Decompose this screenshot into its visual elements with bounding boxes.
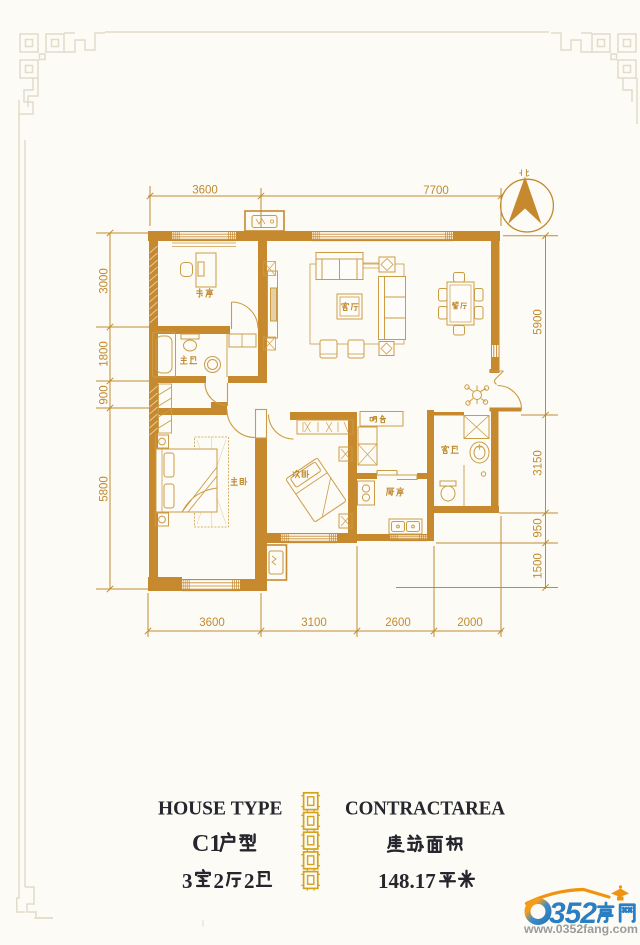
svg-text:CONTRACTAREA: CONTRACTAREA [345,799,505,820]
svg-text:5900: 5900 [533,309,545,335]
svg-text:1800: 1800 [99,341,111,367]
svg-text:3000: 3000 [99,268,111,294]
svg-text:2600: 2600 [385,617,411,629]
svg-text:2: 2 [214,869,225,893]
svg-text:900: 900 [99,385,111,404]
svg-text:3100: 3100 [301,617,327,629]
svg-text:www.0352fang.com: www.0352fang.com [523,924,638,936]
svg-text:C1: C1 [192,831,221,857]
svg-text:3600: 3600 [199,617,225,629]
svg-text:7700: 7700 [423,185,449,197]
svg-text:3600: 3600 [192,185,218,197]
svg-text:950: 950 [533,518,545,537]
svg-text:2000: 2000 [457,617,483,629]
svg-text:1500: 1500 [533,553,545,579]
svg-text:HOUSE TYPE: HOUSE TYPE [158,799,283,820]
svg-text:5800: 5800 [99,476,111,502]
svg-text:148.17: 148.17 [378,869,436,893]
svg-text:3150: 3150 [533,450,545,476]
svg-text:3: 3 [182,869,193,893]
svg-text:2: 2 [244,869,255,893]
